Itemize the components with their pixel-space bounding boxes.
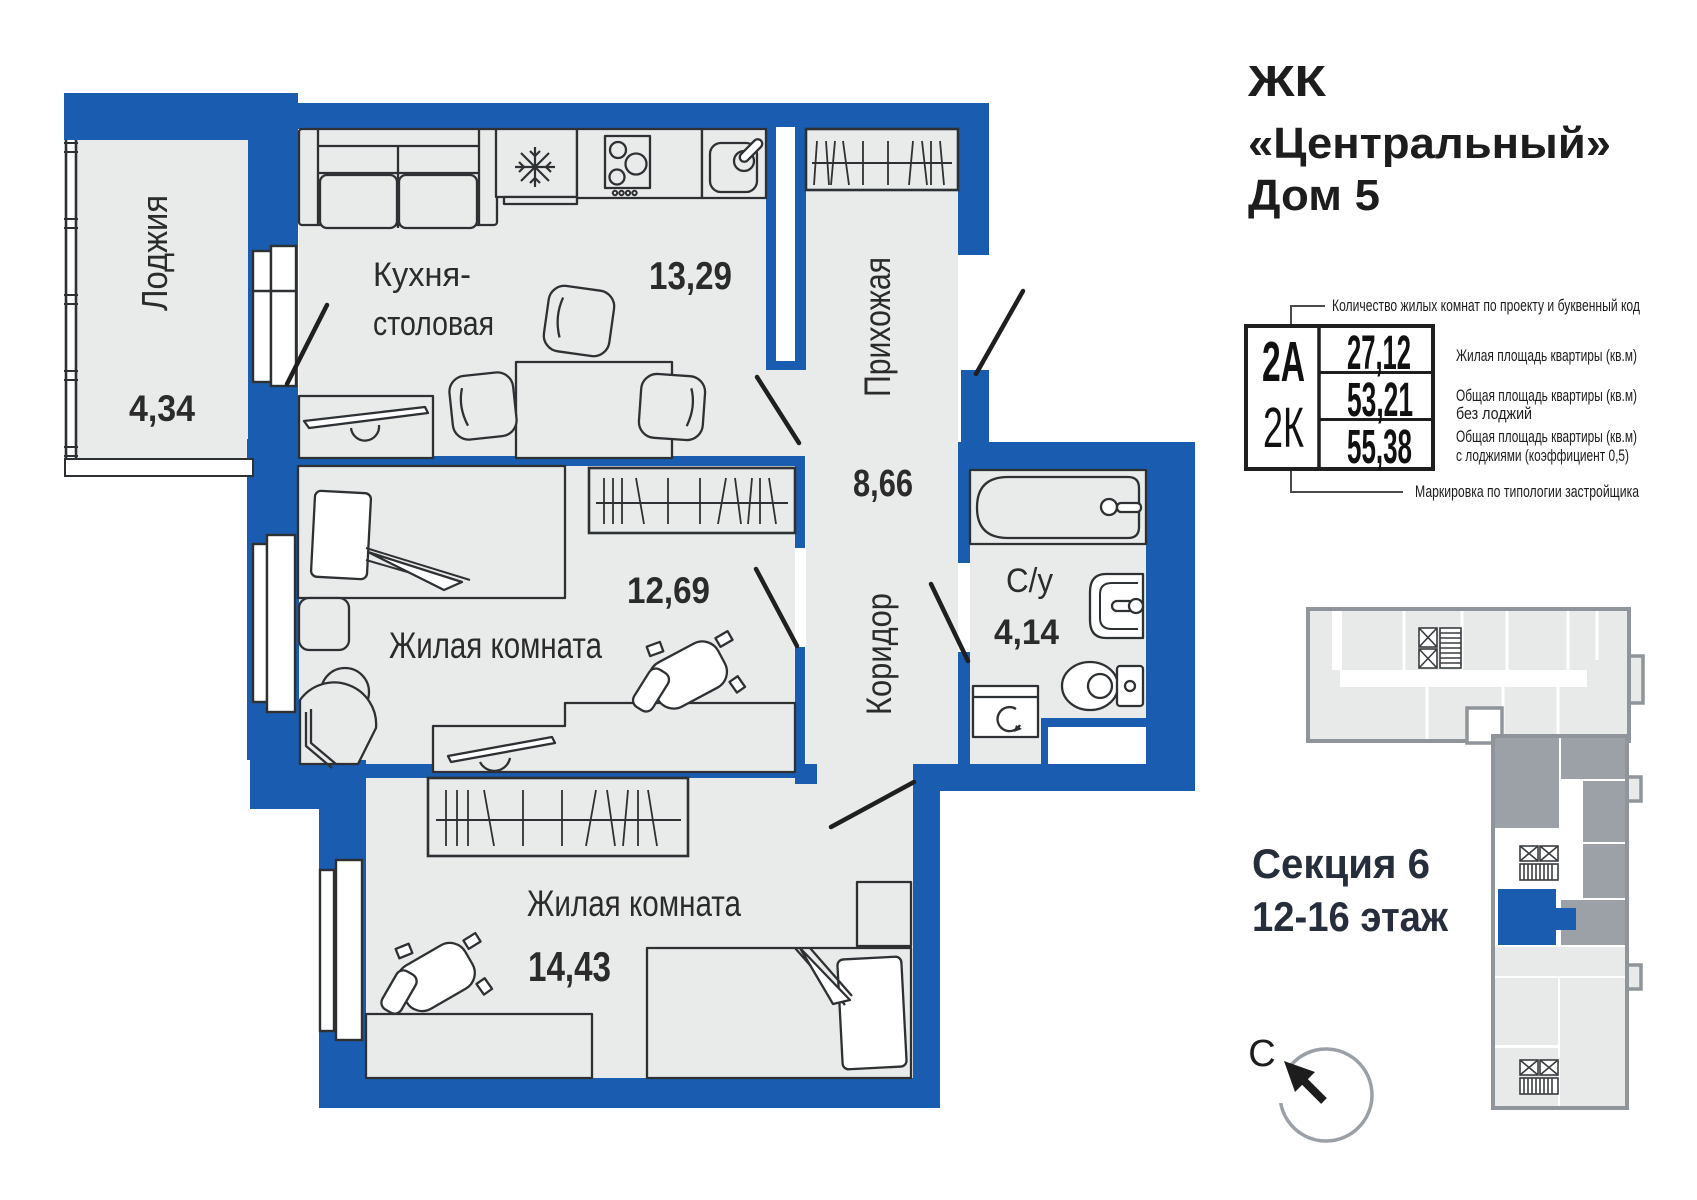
svg-text:53,21: 53,21 — [1347, 374, 1413, 427]
svg-text:Жилая комната: Жилая комната — [527, 883, 741, 924]
svg-text:27,12: 27,12 — [1347, 327, 1411, 380]
svg-text:С: С — [1248, 1033, 1275, 1075]
svg-text:Прихожая: Прихожая — [857, 257, 898, 397]
svg-text:12-16 этаж: 12-16 этаж — [1252, 893, 1449, 940]
svg-text:55,38: 55,38 — [1347, 421, 1412, 474]
svg-text:Маркировка по типологии застро: Маркировка по типологии застройщика — [1415, 482, 1639, 501]
svg-text:«Центральный»: «Центральный» — [1248, 119, 1611, 168]
svg-text:2К: 2К — [1263, 396, 1304, 460]
svg-text:Жилая площадь квартиры (кв.м): Жилая площадь квартиры (кв.м) — [1456, 346, 1637, 365]
svg-text:Общая площадь квартиры (кв.м): Общая площадь квартиры (кв.м) — [1456, 427, 1637, 446]
svg-text:Количество жилых комнат по про: Количество жилых комнат по проекту и бук… — [1332, 296, 1640, 315]
svg-text:Дом 5: Дом 5 — [1248, 171, 1380, 220]
svg-text:С/у: С/у — [1006, 562, 1053, 600]
svg-text:4,14: 4,14 — [994, 613, 1060, 652]
svg-text:13,29: 13,29 — [649, 255, 732, 298]
svg-text:Общая площадь квартиры (кв.м): Общая площадь квартиры (кв.м) — [1456, 386, 1637, 405]
svg-text:4,34: 4,34 — [129, 388, 195, 429]
svg-text:8,66: 8,66 — [853, 463, 913, 505]
svg-text:с лоджиями (коэффициент 0,5): с лоджиями (коэффициент 0,5) — [1456, 446, 1629, 465]
svg-text:Секция 6: Секция 6 — [1252, 840, 1430, 887]
svg-text:без лоджий: без лоджий — [1456, 404, 1532, 423]
svg-text:ЖК: ЖК — [1247, 57, 1326, 106]
svg-text:2А: 2А — [1262, 330, 1305, 394]
svg-text:14,43: 14,43 — [528, 943, 611, 990]
svg-text:Кухня-: Кухня- — [373, 256, 471, 294]
svg-text:Лоджия: Лоджия — [134, 195, 175, 311]
svg-text:Коридор: Коридор — [860, 593, 899, 715]
svg-text:Жилая комната: Жилая комната — [389, 625, 602, 666]
svg-text:столовая: столовая — [373, 305, 494, 343]
svg-text:12,69: 12,69 — [627, 570, 710, 611]
